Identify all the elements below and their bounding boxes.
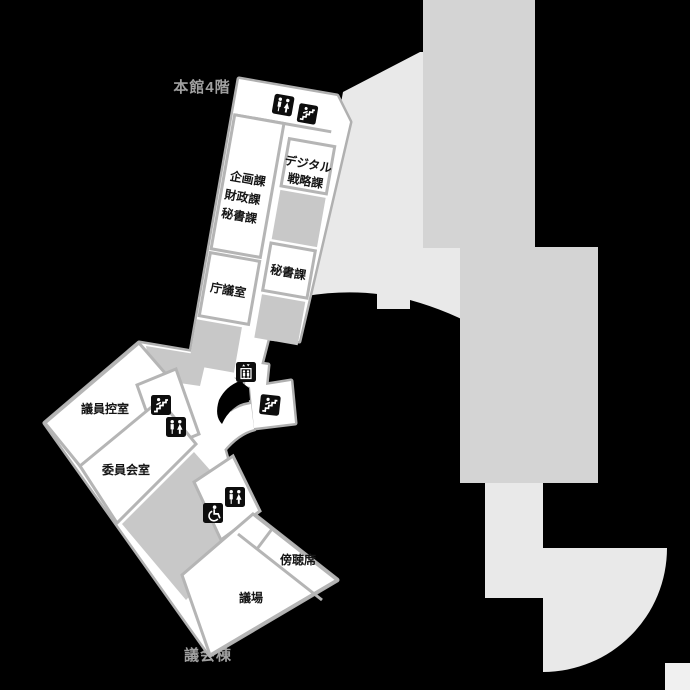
floor-map-svg: 本館4階 議会棟 企画課 財政課 秘書課 庁議室 デジタル 戦略課 秘書課 <box>0 0 690 690</box>
wheelchair-icon <box>203 503 223 523</box>
stairs-icon <box>259 394 281 416</box>
room-label-bouchou: 傍聴席 <box>280 552 316 567</box>
floor-map-canvas: 本館4階 議会棟 企画課 財政課 秘書課 庁議室 デジタル 戦略課 秘書課 <box>0 0 690 690</box>
stairs-icon <box>151 395 171 415</box>
room-label-giin: 議員控室 <box>81 401 129 416</box>
silhouette-tab <box>377 292 410 309</box>
silhouette-top-right <box>423 0 535 248</box>
silhouette-corner <box>665 663 690 690</box>
elevator-icon <box>236 362 256 382</box>
restroom-icon <box>166 417 186 437</box>
restroom-icon <box>225 487 245 507</box>
restroom-icon <box>272 93 295 116</box>
silhouette-quarter-disc <box>485 483 667 672</box>
silhouette-mid-right <box>460 247 598 483</box>
room-label-iinkai: 委員会室 <box>101 462 150 477</box>
gray-room-right-1 <box>272 190 326 247</box>
gray-room-right-2 <box>254 294 305 345</box>
room-label-gijou: 議場 <box>239 590 263 605</box>
building-silhouette <box>306 0 690 690</box>
stairs-icon <box>296 103 318 125</box>
edge-label-top: 本館4階 <box>173 78 230 96</box>
